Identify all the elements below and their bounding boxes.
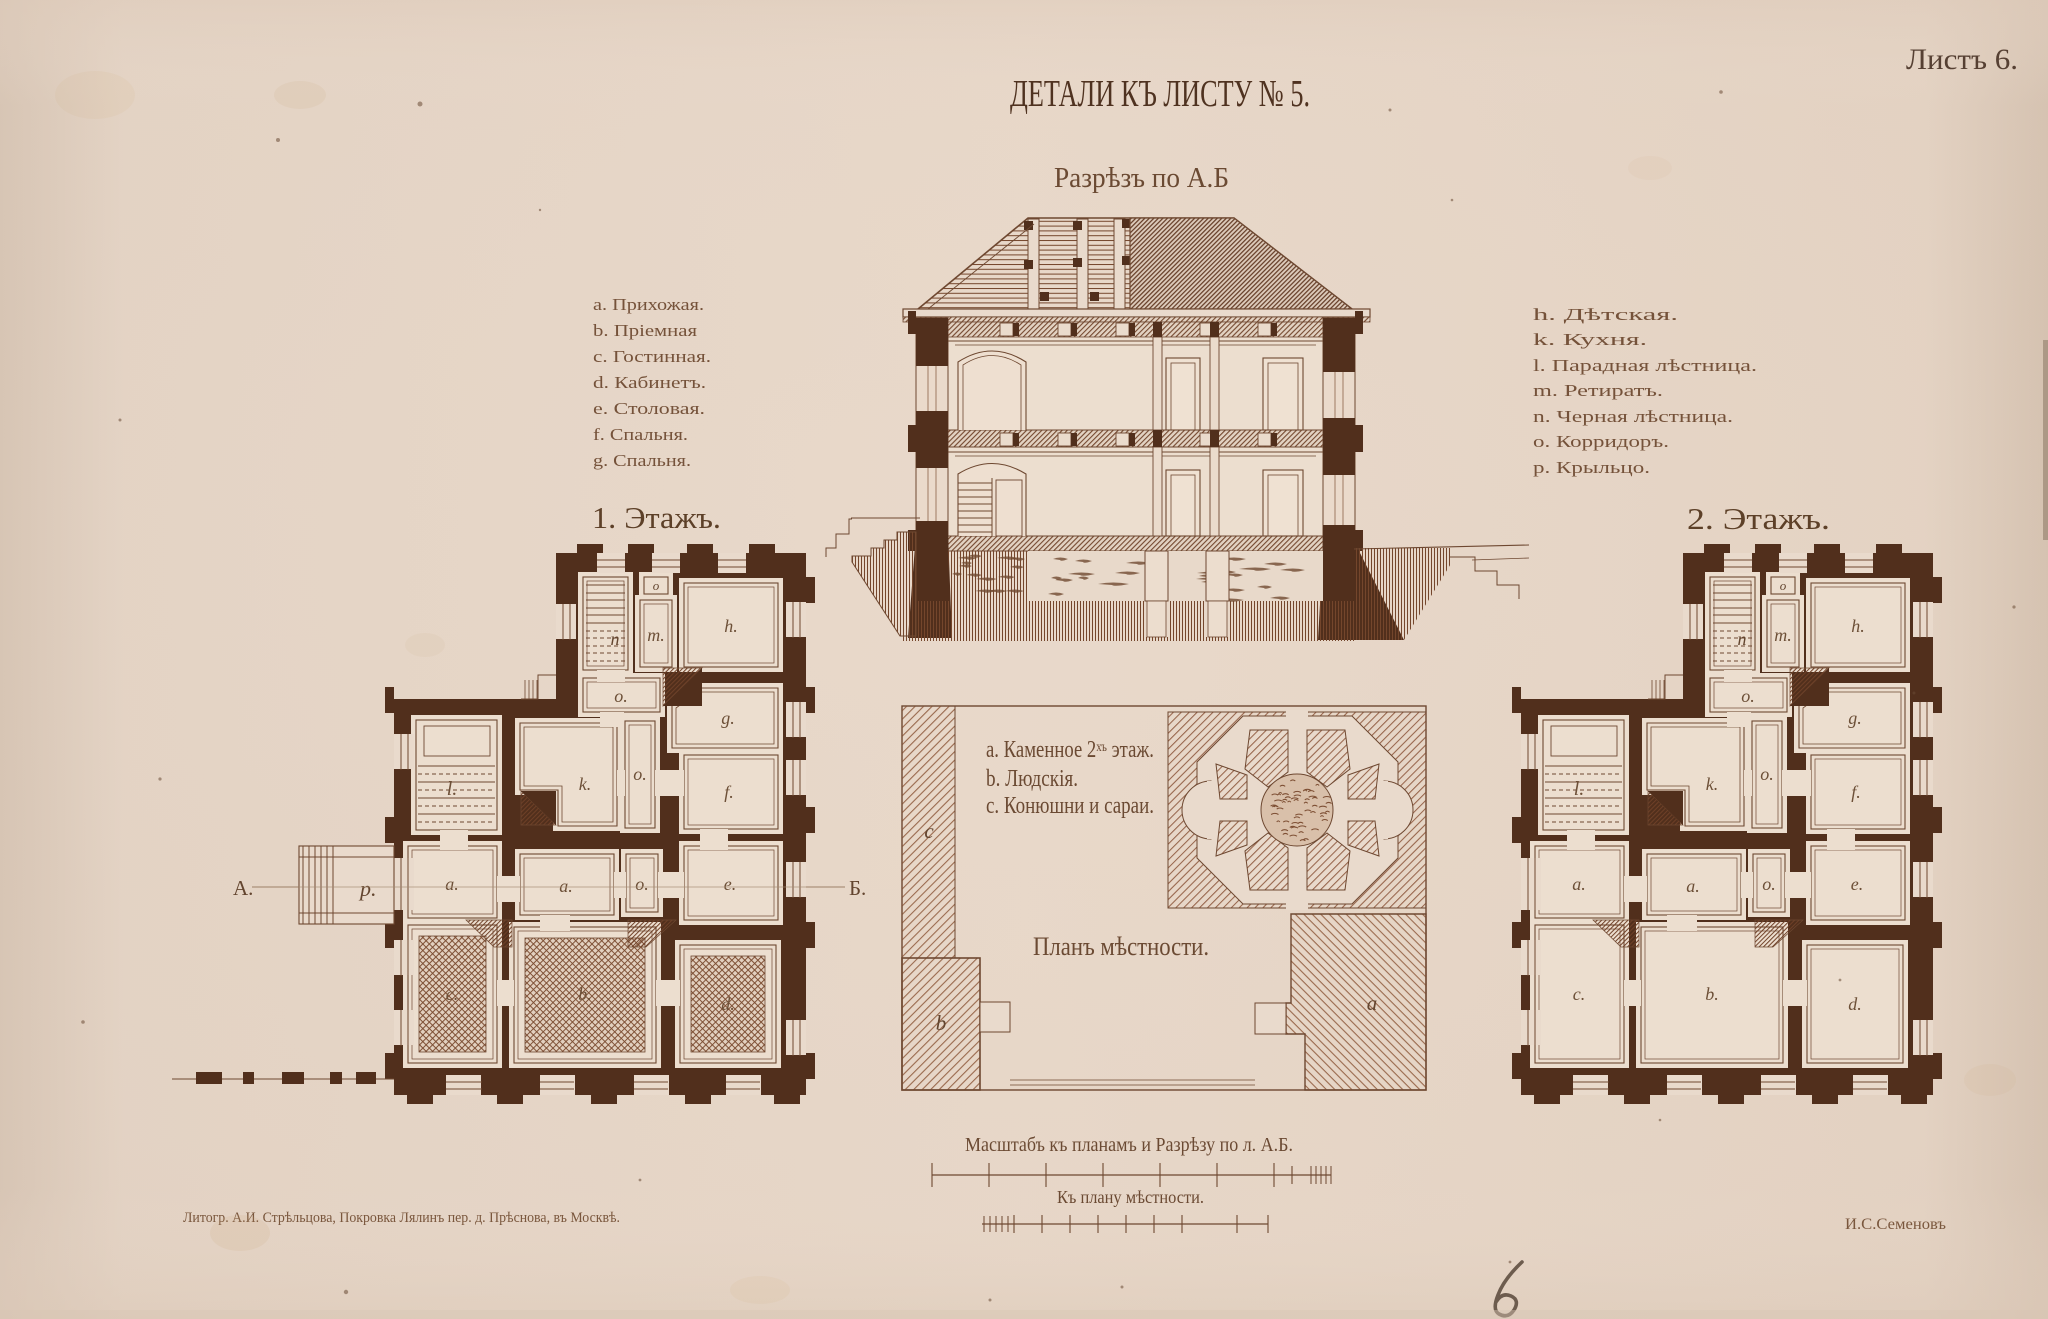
svg-text:с.: с. [446,984,459,1004]
svg-text:p. Крыльцо.: p. Крыльцо. [1533,458,1650,477]
svg-text:а. Каменное 2хъ этаж.: а. Каменное 2хъ этаж. [986,737,1154,763]
svg-text:а.: а. [559,876,573,896]
svg-text:o: o [653,578,660,593]
svg-text:o.: o. [1741,686,1755,706]
svg-text:а.: а. [1572,874,1586,894]
svg-text:с. Конюшни и сараи.: с. Конюшни и сараи. [986,793,1154,819]
svg-text:р.: р. [358,876,377,901]
svg-text:Б.: Б. [849,876,866,900]
svg-text:b. Людскія.: b. Людскія. [986,766,1078,792]
svg-text:а.: а. [1686,876,1700,896]
svg-text:е.: е. [1851,874,1864,894]
svg-text:n: n [1738,629,1747,649]
svg-text:k.: k. [579,774,592,794]
svg-text:е.: е. [724,874,737,894]
svg-text:h.: h. [724,616,738,636]
svg-text:b: b [936,1011,947,1035]
svg-text:f.: f. [724,782,734,802]
svg-text:o.: o. [633,764,647,784]
svg-text:o.: o. [1762,874,1776,894]
svg-text:h.: h. [1851,616,1865,636]
svg-text:l.: l. [447,778,458,800]
svg-text:а. Прихожая.: а. Прихожая. [593,295,704,314]
svg-text:с.: с. [1573,984,1586,1004]
svg-text:с. Гостинная.: с. Гостинная. [593,347,711,366]
svg-text:Масштабъ къ планамъ и Разрѣзу: Масштабъ къ планамъ и Разрѣзу по л. А.Б. [965,1134,1293,1156]
svg-text:l.: l. [1574,778,1585,800]
svg-text:b. Пріемная: b. Пріемная [593,321,698,340]
svg-text:n. Черная лѣстница.: n. Черная лѣстница. [1533,407,1733,426]
svg-text:а.: а. [445,874,459,894]
svg-text:Къ плану мѣстности.: Къ плану мѣстности. [1057,1187,1204,1207]
svg-text:1. Этажъ.: 1. Этажъ. [592,500,721,535]
svg-text:А.: А. [233,876,253,900]
svg-text:И.С.Семеновъ: И.С.Семеновъ [1845,1216,1946,1233]
svg-text:f.: f. [1851,782,1861,802]
svg-text:b.: b. [1705,984,1719,1004]
svg-text:f. Спальня.: f. Спальня. [593,425,688,444]
svg-text:Листъ 6.: Листъ 6. [1906,43,2018,76]
svg-text:d. Кабинетъ.: d. Кабинетъ. [593,373,706,392]
svg-text:ДЕТАЛИ КЪ ЛИСТУ № 5.: ДЕТАЛИ КЪ ЛИСТУ № 5. [1010,73,1310,115]
svg-text:h. Дѣтская.: h. Дѣтская. [1533,305,1678,324]
svg-text:g. Спальня.: g. Спальня. [593,451,691,470]
svg-text:n: n [611,629,620,649]
svg-text:k. Кухня.: k. Кухня. [1533,330,1647,349]
svg-text:o: o [1780,578,1787,593]
svg-text:2. Этажъ.: 2. Этажъ. [1687,501,1830,536]
svg-text:Разрѣзъ по А.Б: Разрѣзъ по А.Б [1054,163,1229,194]
svg-text:с: с [924,819,934,843]
svg-text:m.: m. [1774,625,1792,645]
svg-text:b.: b. [578,984,592,1004]
svg-text:d.: d. [721,994,735,1014]
svg-text:g.: g. [721,708,735,728]
svg-text:а: а [1367,991,1378,1015]
svg-text:o.: o. [1760,764,1774,784]
svg-text:g.: g. [1848,708,1862,728]
svg-text:d.: d. [1848,994,1862,1014]
svg-text:е. Столовая.: е. Столовая. [593,399,705,418]
svg-text:k.: k. [1706,774,1719,794]
svg-text:Планъ мѣстности.: Планъ мѣстности. [1033,932,1209,961]
svg-text:l. Парадная лѣстница.: l. Парадная лѣстница. [1533,356,1757,375]
svg-text:m.: m. [647,625,665,645]
svg-text:m. Ретиратъ.: m. Ретиратъ. [1533,381,1663,400]
svg-text:o.: o. [614,686,628,706]
svg-text:o. Корридоръ.: o. Корридоръ. [1533,432,1669,451]
svg-text:o.: o. [635,874,649,894]
